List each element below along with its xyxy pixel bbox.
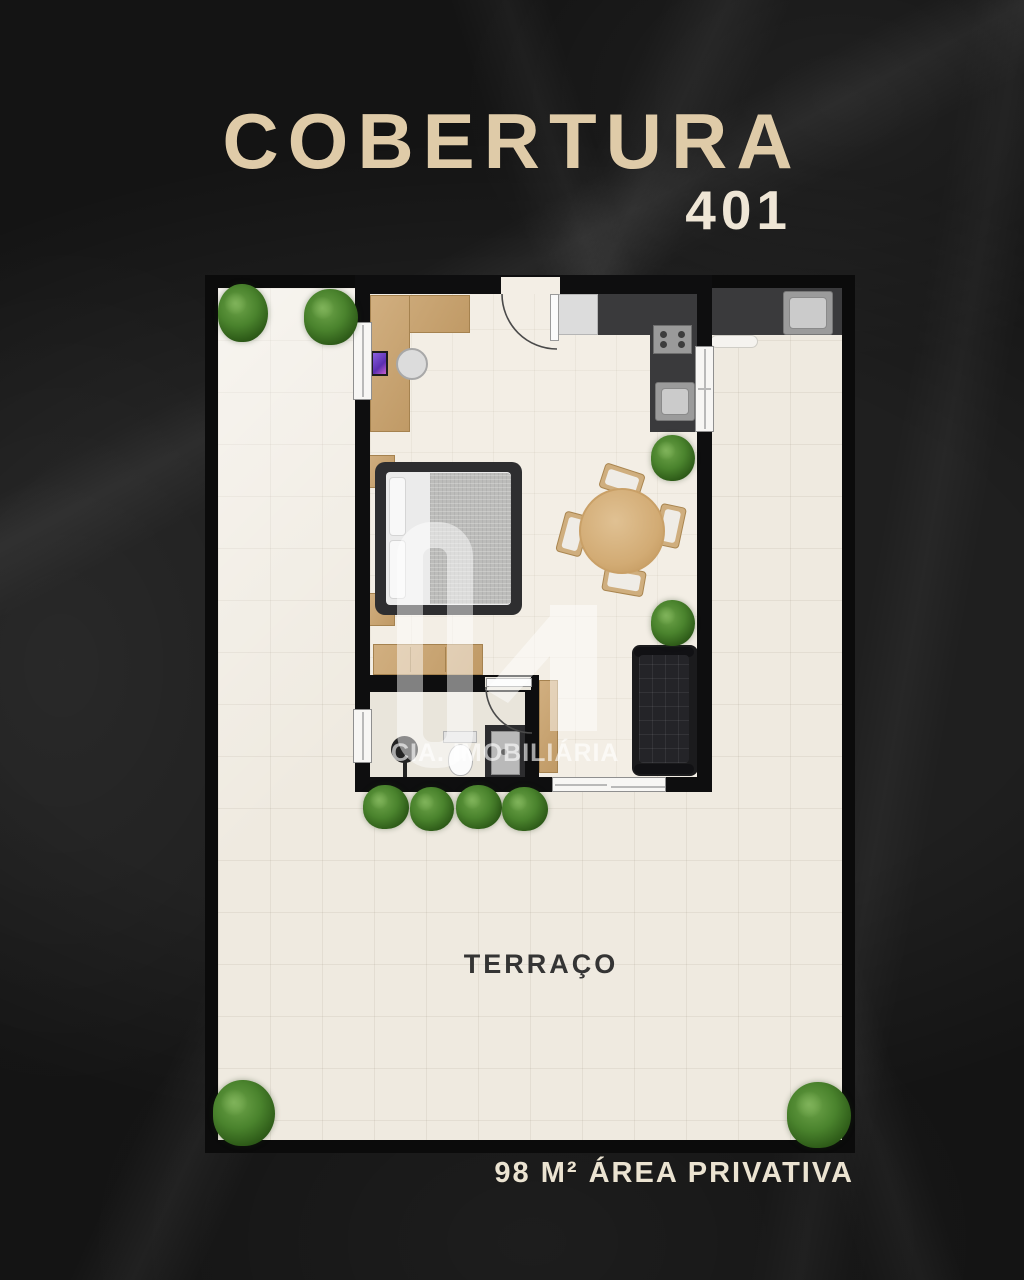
terrace-label: TERRAÇO	[205, 949, 855, 980]
computer	[371, 351, 388, 376]
pillow	[389, 540, 406, 599]
plant	[363, 785, 409, 829]
entry-opening	[501, 277, 560, 294]
unit-number: 401	[685, 178, 792, 242]
plant	[502, 787, 548, 831]
fridge	[555, 294, 598, 335]
blanket	[430, 473, 511, 604]
service-bench	[710, 335, 758, 348]
dresser	[373, 644, 483, 675]
poster: { "poster": { "title": "COBERTURA", "uni…	[0, 0, 1024, 1280]
terrace-sliding-door	[552, 777, 666, 792]
floor-plan: TERRAÇO CIA. IMOBILIÁRIA	[205, 275, 855, 1153]
plant	[304, 289, 358, 345]
desk-chair	[396, 348, 428, 380]
stove	[653, 325, 692, 354]
bedroom-window	[353, 322, 372, 400]
entry-door	[550, 294, 559, 341]
bathroom-door	[486, 678, 532, 687]
dining-table	[579, 488, 665, 574]
kitchen-sink	[655, 382, 695, 421]
plant	[651, 600, 695, 646]
bathroom-right-wall	[525, 675, 539, 792]
service-sink	[783, 291, 833, 335]
pillow	[389, 477, 406, 536]
plant	[456, 785, 502, 829]
bathroom-window	[353, 709, 372, 763]
area-caption: 98 M² ÁREA PRIVATIVA	[494, 1157, 854, 1190]
plant	[410, 787, 454, 831]
agency-watermark-text: CIA. IMOBILIÁRIA	[391, 739, 651, 768]
plant	[787, 1082, 851, 1148]
plant	[651, 435, 695, 481]
plant	[213, 1080, 275, 1146]
kitchen-service-window	[695, 346, 714, 432]
page-title: COBERTURA	[0, 96, 1024, 187]
plant	[218, 284, 268, 342]
